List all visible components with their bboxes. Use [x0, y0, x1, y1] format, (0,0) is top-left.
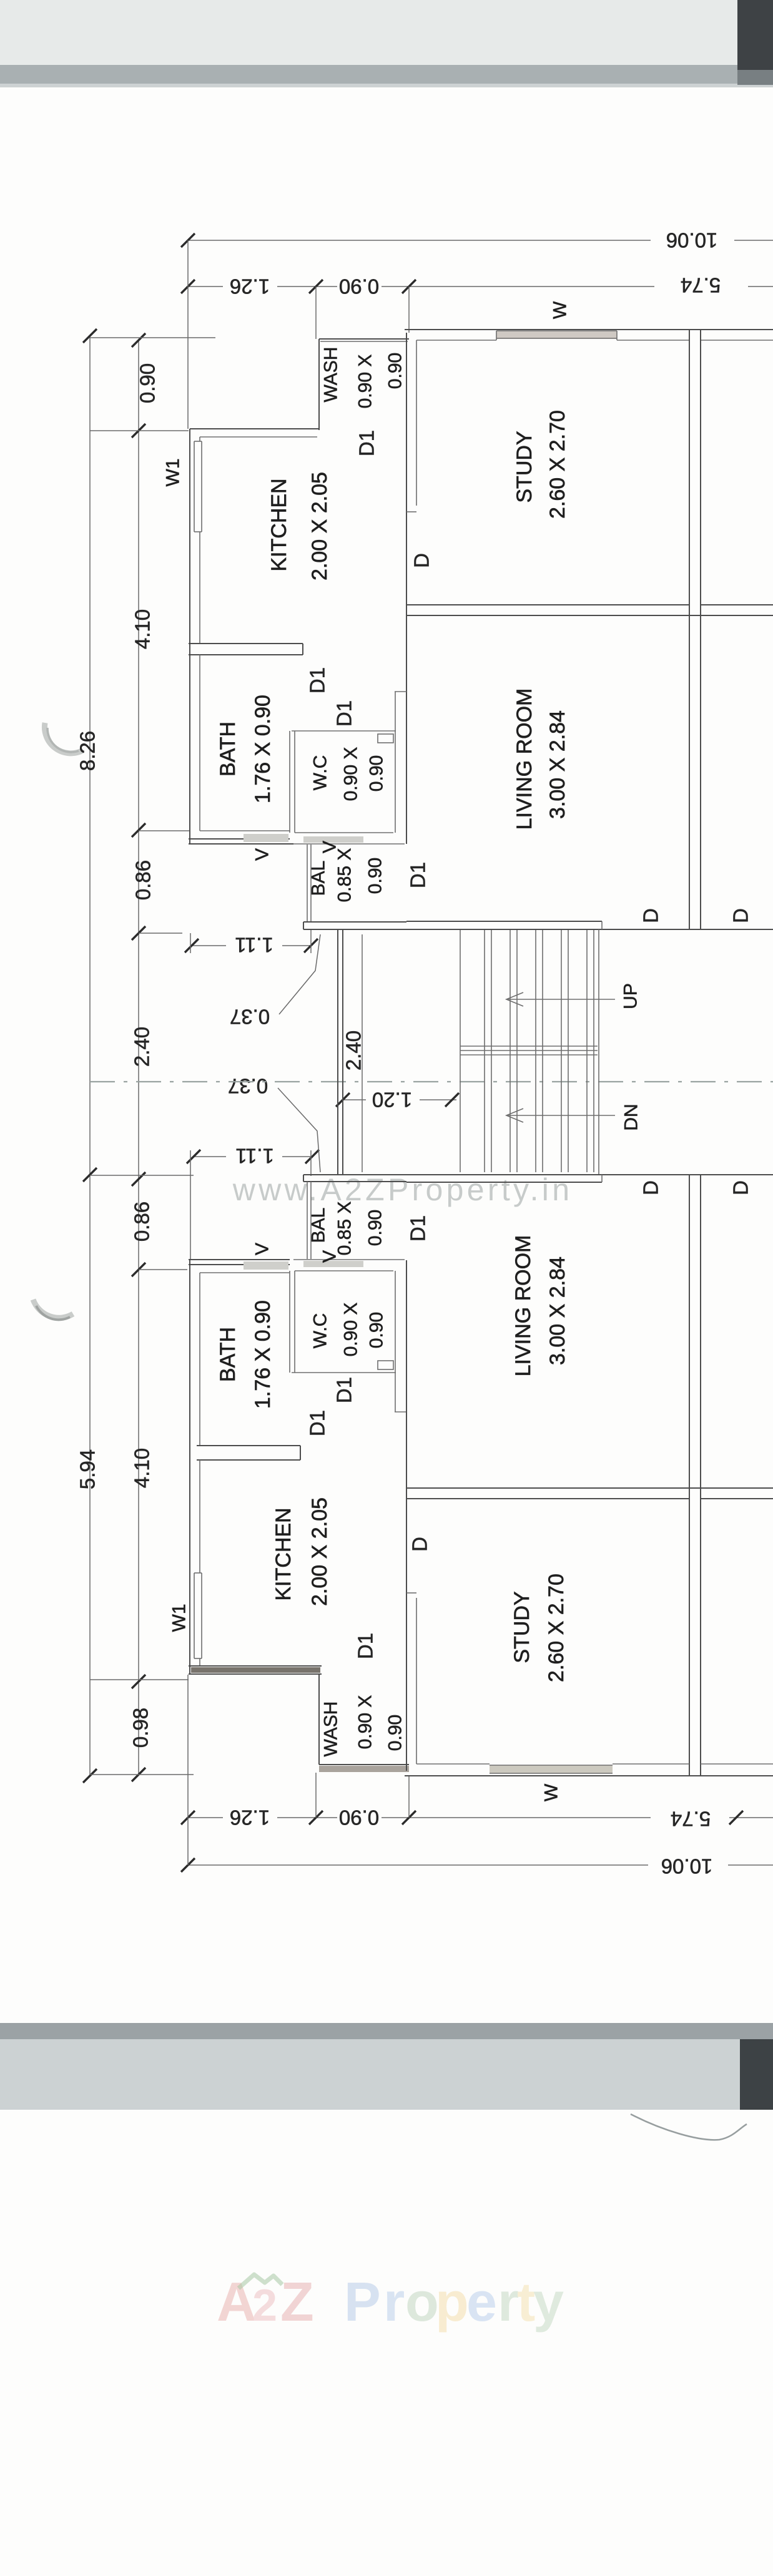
svg-text:5.74: 5.74 [681, 274, 721, 297]
svg-text:D: D [410, 553, 433, 568]
svg-text:0.86: 0.86 [130, 1202, 154, 1241]
svg-text:2: 2 [252, 2281, 277, 2331]
svg-text:D: D [729, 1180, 752, 1195]
svg-text:0.90 X: 0.90 X [341, 1303, 362, 1357]
svg-text:0.90 X: 0.90 X [355, 1695, 376, 1750]
svg-text:1.26: 1.26 [230, 1806, 270, 1829]
svg-text:1.76 X 0.90: 1.76 X 0.90 [251, 695, 275, 803]
svg-text:0.37: 0.37 [230, 1006, 270, 1029]
svg-text:V: V [252, 848, 273, 861]
svg-text:W: W [541, 1783, 562, 1801]
svg-text:5.74: 5.74 [671, 1808, 711, 1831]
svg-text:UP: UP [621, 983, 641, 1009]
svg-text:2.40: 2.40 [342, 1031, 365, 1070]
svg-text:LIVING ROOM: LIVING ROOM [513, 688, 536, 830]
svg-text:0.86: 0.86 [132, 860, 155, 900]
svg-text:5.94: 5.94 [76, 1449, 99, 1489]
svg-text:3.00 X 2.84: 3.00 X 2.84 [546, 710, 569, 819]
svg-text:3.00 X 2.84: 3.00 X 2.84 [546, 1256, 569, 1365]
svg-text:KITCHEN: KITCHEN [272, 1507, 295, 1600]
svg-text:p: p [435, 2271, 469, 2333]
svg-text:2.60 X 2.70: 2.60 X 2.70 [544, 1574, 568, 1682]
svg-text:W.C: W.C [310, 1313, 331, 1349]
svg-text:V: V [320, 1250, 340, 1263]
svg-text:D1: D1 [306, 667, 329, 693]
svg-text:o: o [405, 2271, 439, 2333]
svg-text:2.60 X 2.70: 2.60 X 2.70 [546, 410, 569, 519]
svg-text:P: P [344, 2271, 381, 2333]
svg-text:4.10: 4.10 [131, 609, 154, 649]
svg-text:2.00 X 2.05: 2.00 X 2.05 [308, 472, 332, 580]
svg-text:1.26: 1.26 [230, 275, 270, 298]
svg-text:D1: D1 [306, 1410, 329, 1436]
svg-text:0.85 X: 0.85 X [335, 1202, 355, 1256]
svg-text:2.00 X 2.05: 2.00 X 2.05 [308, 1497, 332, 1606]
svg-text:WASH: WASH [321, 1702, 342, 1757]
svg-text:KITCHEN: KITCHEN [267, 478, 291, 571]
svg-text:0.98: 0.98 [129, 1708, 152, 1748]
svg-text:0.90: 0.90 [136, 363, 159, 403]
svg-text:y: y [533, 2271, 564, 2333]
svg-text:W.C: W.C [310, 755, 331, 791]
svg-text:2.40: 2.40 [130, 1027, 154, 1067]
svg-text:D: D [408, 1537, 431, 1552]
svg-text:0.90 X: 0.90 X [341, 747, 362, 801]
svg-text:WASH: WASH [321, 347, 342, 403]
svg-text:0.90: 0.90 [385, 353, 406, 389]
svg-text:10.06: 10.06 [666, 229, 718, 252]
svg-text:0.90: 0.90 [339, 1806, 379, 1829]
svg-text:D: D [639, 908, 662, 923]
svg-text:1.20: 1.20 [372, 1089, 412, 1112]
svg-text:D: D [729, 908, 752, 923]
svg-text:W1: W1 [163, 459, 184, 487]
svg-text:1.11: 1.11 [235, 1145, 274, 1168]
svg-text:DN: DN [621, 1104, 642, 1130]
svg-text:0.90: 0.90 [385, 1715, 406, 1751]
svg-text:BATH: BATH [216, 1327, 240, 1382]
svg-text:4.10: 4.10 [130, 1448, 154, 1488]
svg-text:V: V [252, 1243, 273, 1255]
svg-text:10.06: 10.06 [661, 1855, 713, 1878]
svg-text:0.37: 0.37 [228, 1075, 268, 1098]
svg-text:e: e [466, 2271, 497, 2333]
svg-text:Z: Z [280, 2271, 314, 2333]
svg-text:www.A2ZProperty.in: www.A2ZProperty.in [232, 1172, 573, 1207]
svg-text:0.90: 0.90 [365, 1210, 386, 1246]
svg-text:W: W [550, 301, 571, 319]
svg-text:1.76 X 0.90: 1.76 X 0.90 [251, 1300, 275, 1409]
svg-text:t: t [517, 2271, 535, 2333]
svg-text:0.90: 0.90 [365, 858, 386, 894]
svg-text:1.11: 1.11 [235, 934, 273, 957]
svg-text:r: r [498, 2271, 519, 2333]
svg-text:LIVING ROOM: LIVING ROOM [511, 1235, 535, 1377]
svg-text:W1: W1 [169, 1604, 190, 1632]
svg-text:r: r [383, 2271, 405, 2333]
svg-text:STUDY: STUDY [513, 431, 536, 502]
svg-text:BAL: BAL [308, 861, 329, 896]
svg-text:STUDY: STUDY [510, 1591, 534, 1663]
svg-text:D: D [639, 1180, 662, 1195]
svg-text:D1: D1 [333, 700, 356, 727]
svg-text:D1: D1 [406, 862, 430, 888]
svg-text:D1: D1 [333, 1377, 356, 1403]
svg-text:8.26: 8.26 [76, 731, 99, 771]
svg-text:D1: D1 [406, 1215, 430, 1241]
svg-text:0.85 X: 0.85 X [335, 848, 355, 903]
svg-text:D1: D1 [355, 430, 378, 456]
svg-text:0.90: 0.90 [367, 1312, 387, 1348]
svg-text:BAL: BAL [308, 1208, 329, 1243]
svg-text:D1: D1 [354, 1633, 377, 1659]
svg-text:0.90: 0.90 [367, 755, 387, 791]
svg-text:0.90 X: 0.90 X [355, 355, 376, 409]
svg-text:0.90: 0.90 [339, 275, 379, 298]
svg-text:BATH: BATH [216, 722, 240, 776]
